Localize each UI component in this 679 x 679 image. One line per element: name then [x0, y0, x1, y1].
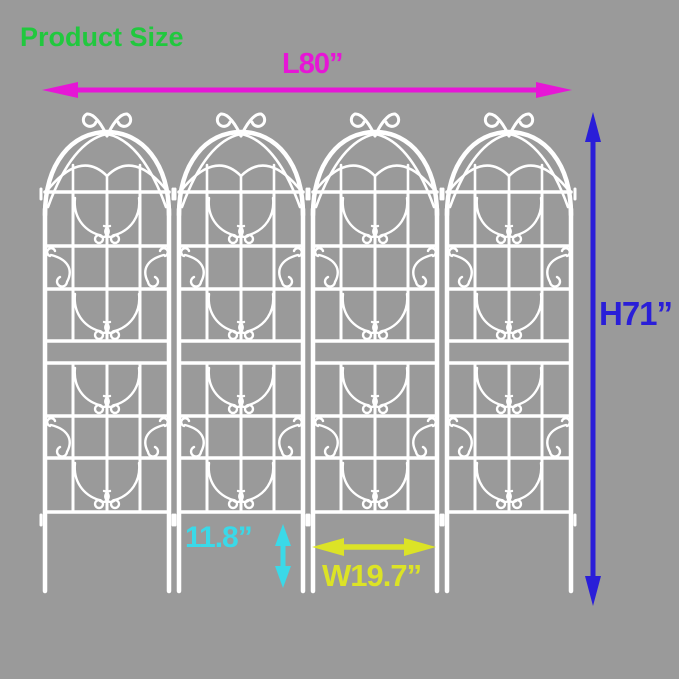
leg-height-dimension-arrow [270, 522, 296, 590]
height-dimension-arrow [579, 110, 609, 608]
leg-arrow-head-top [275, 524, 291, 546]
trellis-panel-3 [309, 114, 441, 591]
length-dimension-arrow [40, 80, 574, 100]
width-arrow-head-left [312, 538, 344, 556]
trellis-panel-4 [443, 114, 575, 591]
height-arrow-head-top [585, 112, 601, 142]
trellis-panel-1 [41, 114, 173, 591]
width-arrow-head-right [404, 538, 436, 556]
length-label: L80” [282, 50, 342, 79]
leg-height-label: 11.8” [185, 523, 252, 553]
leg-arrow-head-bottom [275, 566, 291, 588]
panel-width-dimension-arrow [310, 534, 438, 560]
height-arrow-head-bottom [585, 576, 601, 606]
height-label: H71” [599, 297, 672, 330]
length-arrow-head-left [42, 82, 78, 98]
trellis-panel-2 [175, 114, 307, 591]
product-size-diagram: Product Size [0, 0, 679, 679]
panel-width-label: W19.7” [322, 560, 421, 591]
length-arrow-head-right [536, 82, 572, 98]
